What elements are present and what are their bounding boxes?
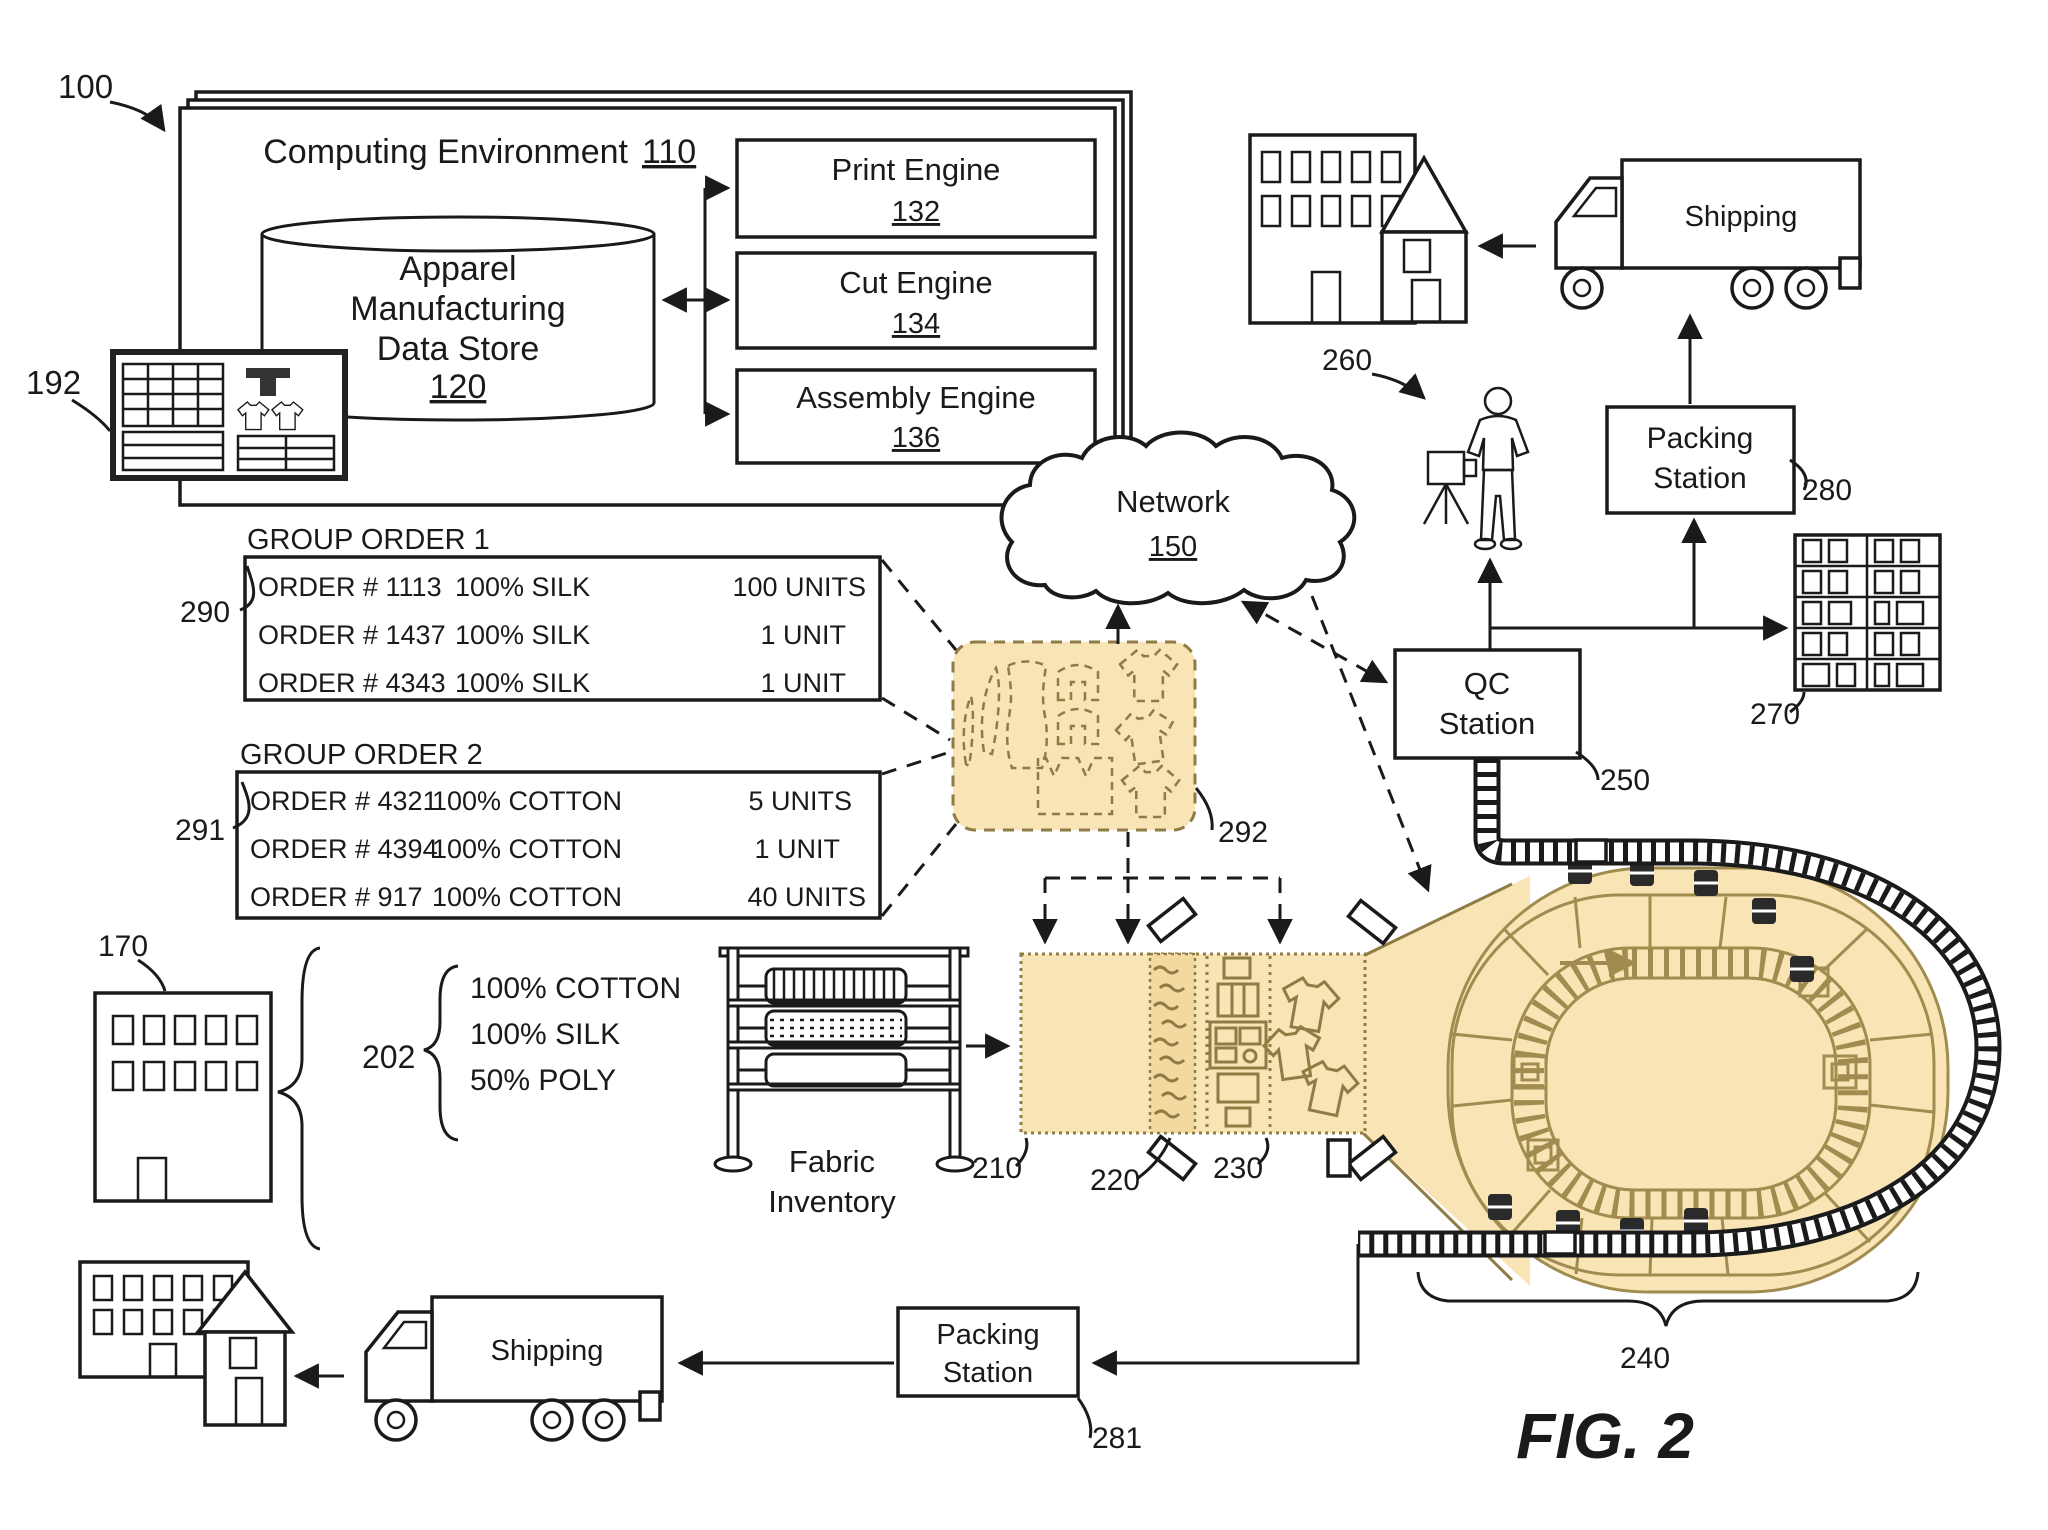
production-line: 210 220 230 bbox=[972, 899, 1395, 1197]
go1-r1-units: 100 UNITS bbox=[732, 572, 866, 602]
go1-r1-fabric: 100% SILK bbox=[455, 572, 590, 602]
packing-281-line2: Station bbox=[943, 1357, 1033, 1389]
link-cloud-qc bbox=[1243, 602, 1386, 682]
group-order-1: GROUP ORDER 1 ORDER # 1113 100% SILK 100… bbox=[180, 524, 880, 700]
go1-r2-units: 1 UNIT bbox=[760, 620, 846, 650]
label-240: 240 bbox=[1620, 1342, 1670, 1375]
assembly-engine-label: Assembly Engine bbox=[796, 380, 1036, 415]
client-screen: 192 bbox=[26, 352, 345, 478]
cut-engine-label: Cut Engine bbox=[839, 265, 992, 300]
shipping-truck-top: Shipping bbox=[1556, 160, 1860, 308]
go2-r2-units: 1 UNIT bbox=[754, 834, 840, 864]
sortation-carousel-240: 240 bbox=[1363, 858, 1948, 1375]
go2-r3-fabric: 100% COTTON bbox=[432, 882, 622, 912]
label-220: 220 bbox=[1090, 1164, 1140, 1197]
line-to-packing-281 bbox=[1094, 1244, 1358, 1363]
label-292: 292 bbox=[1218, 816, 1268, 849]
group-order-2-title: GROUP ORDER 2 bbox=[240, 739, 483, 771]
cab-bottom bbox=[366, 1312, 432, 1401]
label-192: 192 bbox=[26, 364, 81, 401]
packing-280-line1: Packing bbox=[1647, 422, 1754, 455]
go2-r1-order: ORDER # 4321 bbox=[250, 786, 438, 816]
packing-281-line1: Packing bbox=[936, 1319, 1039, 1351]
fabric-specs-brace bbox=[424, 966, 458, 1140]
pattern-sheet bbox=[953, 642, 1195, 830]
patent-figure-page: 100 Computing Environment 110 Apparel Ma… bbox=[0, 0, 2048, 1530]
print-engine-label: Print Engine bbox=[832, 152, 1001, 187]
packing-station-280: Packing Station 280 bbox=[1607, 316, 1852, 513]
wheels-bottom bbox=[376, 1400, 624, 1440]
label-270: 270 bbox=[1750, 698, 1800, 731]
packing-280-line2: Station bbox=[1653, 462, 1746, 495]
shipping-label-top: Shipping bbox=[1685, 201, 1798, 233]
pattern-layout-292: 292 bbox=[953, 642, 1268, 849]
fabric-spec-1: 100% COTTON bbox=[470, 972, 681, 1005]
qc-output-connectors bbox=[1490, 520, 1786, 650]
qc-line1: QC bbox=[1464, 666, 1511, 701]
network-cloud: Network 150 bbox=[1002, 433, 1355, 604]
group-order-1-title: GROUP ORDER 1 bbox=[247, 524, 490, 556]
track-carrier-2 bbox=[1545, 1232, 1575, 1254]
data-store-line3: Data Store bbox=[377, 330, 540, 368]
label-281: 281 bbox=[1092, 1422, 1142, 1455]
figure-2-diagram: 100 Computing Environment 110 Apparel Ma… bbox=[0, 0, 2048, 1530]
cab-top bbox=[1556, 178, 1622, 268]
leader-260 bbox=[1372, 374, 1424, 398]
go1-r3-units: 1 UNIT bbox=[760, 668, 846, 698]
leader-arrow-100 bbox=[110, 102, 164, 130]
storage-rack-270: 270 bbox=[1750, 535, 1940, 731]
assembly-engine-ref: 136 bbox=[892, 422, 940, 454]
label-170: 170 bbox=[98, 930, 148, 963]
data-store-line1: Apparel bbox=[399, 250, 516, 288]
go2-r1-fabric: 100% COTTON bbox=[432, 786, 622, 816]
wheels-top bbox=[1562, 268, 1826, 308]
fabric-inventory: Fabric Inventory bbox=[715, 948, 1008, 1219]
figure-caption: FIG. 2 bbox=[1516, 1400, 1694, 1472]
leader-170 bbox=[138, 960, 165, 991]
system-ref-100: 100 bbox=[58, 68, 164, 130]
leader-192 bbox=[72, 400, 110, 431]
packing-station-281: Packing Station 281 bbox=[680, 1308, 1142, 1455]
fabric-spec-3: 50% POLY bbox=[470, 1064, 616, 1097]
assembly-engine-box: Assembly Engine 136 bbox=[737, 370, 1095, 463]
fabric-inventory-line2: Inventory bbox=[768, 1184, 896, 1219]
go1-r1-order: ORDER # 1113 bbox=[258, 572, 442, 602]
fabric-rolls bbox=[738, 969, 950, 1086]
label-280: 280 bbox=[1802, 474, 1852, 507]
building-brace bbox=[278, 948, 320, 1249]
group-order-2: GROUP ORDER 2 ORDER # 4321 100% COTTON 5… bbox=[175, 739, 880, 918]
computing-environment-ref: 110 bbox=[642, 133, 696, 171]
fabric-spec-2: 100% SILK bbox=[470, 1018, 620, 1051]
cut-engine-ref: 134 bbox=[892, 308, 940, 340]
monitor-table-grid bbox=[123, 364, 223, 426]
label-291: 291 bbox=[175, 814, 225, 847]
go2-r2-fabric: 100% COTTON bbox=[432, 834, 622, 864]
computing-environment-title: Computing Environment bbox=[263, 133, 628, 171]
go1-r2-order: ORDER # 1437 bbox=[258, 620, 446, 650]
network-ref: 150 bbox=[1149, 531, 1197, 563]
go2-r2-order: ORDER # 4394 bbox=[250, 834, 438, 864]
leader-292 bbox=[1196, 788, 1212, 830]
print-engine-ref: 132 bbox=[892, 196, 940, 228]
go1-r2-fabric: 100% SILK bbox=[455, 620, 590, 650]
label-230: 230 bbox=[1213, 1152, 1263, 1185]
leader-281 bbox=[1078, 1398, 1091, 1438]
go1-r3-fabric: 100% SILK bbox=[455, 668, 590, 698]
go2-r3-order: ORDER # 917 bbox=[250, 882, 423, 912]
shipping-label-bottom: Shipping bbox=[491, 1335, 604, 1367]
shipping-destination-bottom: Shipping bbox=[80, 1262, 662, 1440]
shipping-destination-top: Shipping bbox=[1250, 135, 1860, 323]
supplier-building-170: 170 202 100% COTTON 100% SILK 50% POLY bbox=[95, 930, 681, 1249]
network-label: Network bbox=[1116, 484, 1230, 519]
track-carrier-1 bbox=[1576, 840, 1606, 862]
qc-line2: Station bbox=[1439, 706, 1536, 741]
label-210: 210 bbox=[972, 1152, 1022, 1185]
label-250: 250 bbox=[1600, 764, 1650, 797]
cut-engine-box: Cut Engine 134 bbox=[737, 253, 1095, 348]
label-260: 260 bbox=[1322, 344, 1372, 377]
camera-icon bbox=[1424, 452, 1476, 524]
print-engine-box: Print Engine 132 bbox=[737, 140, 1095, 237]
go1-r3-order: ORDER # 4343 bbox=[258, 668, 446, 698]
label-202: 202 bbox=[362, 1039, 415, 1075]
order-to-pattern-links bbox=[882, 560, 956, 916]
data-store-line2: Manufacturing bbox=[350, 290, 565, 328]
label-290: 290 bbox=[180, 596, 230, 629]
go2-r1-units: 5 UNITS bbox=[748, 786, 852, 816]
data-store-ref: 120 bbox=[430, 368, 487, 406]
label-100: 100 bbox=[58, 68, 113, 105]
shipping-truck-bottom: Shipping bbox=[366, 1297, 662, 1440]
fabric-inventory-line1: Fabric bbox=[789, 1144, 875, 1179]
go2-r3-units: 40 UNITS bbox=[747, 882, 866, 912]
building-body bbox=[95, 993, 271, 1201]
